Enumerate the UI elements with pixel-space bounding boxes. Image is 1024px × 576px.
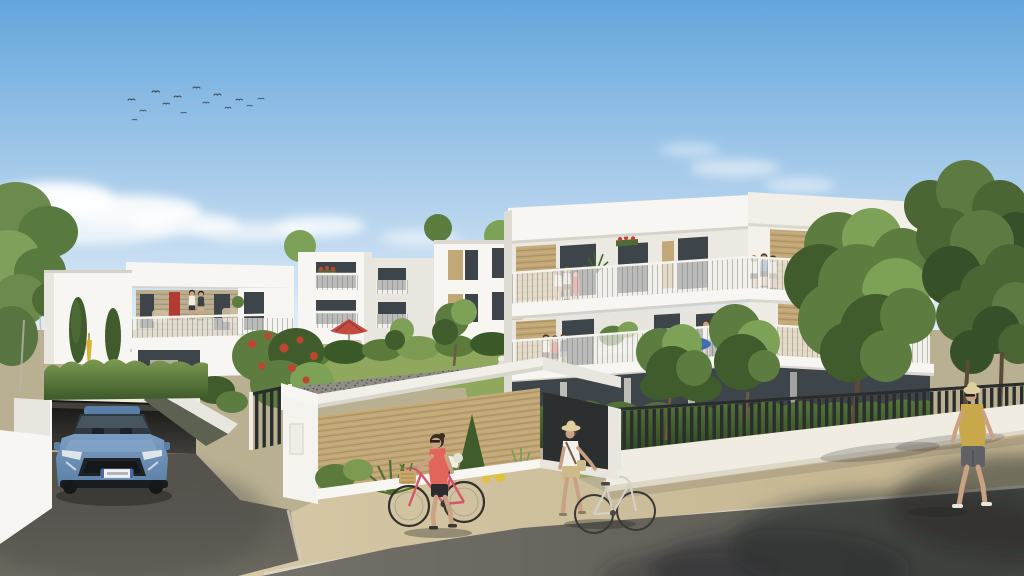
residential-render: [0, 0, 1024, 576]
garage-side-door: [290, 424, 303, 454]
scene-canvas: [0, 0, 1024, 576]
entrance-hedge: [44, 359, 208, 400]
